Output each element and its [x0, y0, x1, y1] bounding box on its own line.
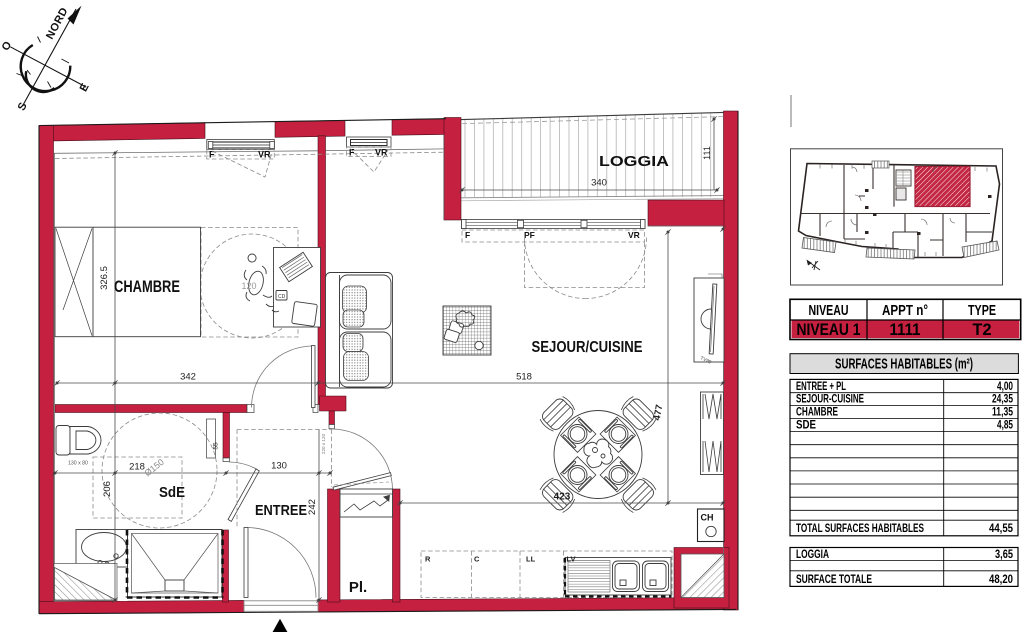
svg-text:F: F: [465, 230, 470, 240]
svg-text:11,35: 11,35: [992, 407, 1013, 419]
svg-text:SDE: SDE: [796, 420, 816, 432]
svg-text:1111: 1111: [890, 321, 921, 339]
svg-text:24,35: 24,35: [992, 394, 1013, 406]
svg-text:TOTAL SURFACES HABITABLES: TOTAL SURFACES HABITABLES: [796, 521, 924, 535]
svg-text:CHAMBRE: CHAMBRE: [796, 407, 838, 419]
svg-text:SdE: SdE: [159, 484, 185, 501]
svg-text:3,65: 3,65: [995, 549, 1013, 561]
svg-text:130: 130: [271, 461, 287, 472]
svg-text:ENTREE + PL: ENTREE + PL: [796, 381, 846, 393]
svg-text:518: 518: [516, 372, 532, 383]
svg-text:APPT n°: APPT n°: [882, 303, 928, 319]
svg-text:LOGGIA: LOGGIA: [599, 154, 670, 170]
svg-text:4,00: 4,00: [997, 381, 1013, 393]
svg-text:SURFACES HABITABLES (m²): SURFACES HABITABLES (m²): [835, 356, 973, 372]
svg-text:R: R: [425, 555, 431, 564]
svg-text:SEJOUR-CUISINE: SEJOUR-CUISINE: [796, 394, 864, 406]
svg-text:340: 340: [591, 178, 607, 189]
svg-text:SEJOUR/CUISINE: SEJOUR/CUISINE: [532, 339, 643, 356]
svg-text:C: C: [474, 555, 480, 564]
svg-text:T2: T2: [973, 321, 992, 339]
svg-text:CH: CH: [701, 513, 714, 523]
svg-text:111: 111: [702, 146, 712, 160]
svg-text:SURFACE TOTALE: SURFACE TOTALE: [796, 572, 872, 586]
svg-text:CD: CD: [278, 294, 286, 300]
svg-text:NIVEAU 1: NIVEAU 1: [797, 321, 861, 339]
svg-text:242: 242: [307, 499, 318, 515]
svg-text:LOGGIA: LOGGIA: [796, 549, 829, 561]
svg-text:44,55: 44,55: [989, 521, 1013, 535]
svg-text:CHAMBRE: CHAMBRE: [114, 277, 180, 296]
svg-text:F: F: [349, 148, 355, 158]
svg-text:TYPE: TYPE: [968, 303, 996, 319]
svg-text:423: 423: [554, 492, 571, 503]
svg-text:LL: LL: [526, 555, 536, 564]
svg-text:NIVEAU: NIVEAU: [809, 303, 849, 319]
svg-text:120: 120: [241, 281, 256, 291]
svg-text:130 x 80: 130 x 80: [68, 461, 88, 467]
svg-text:VR: VR: [375, 148, 388, 158]
svg-text:55: 55: [213, 442, 220, 450]
svg-text:220 x 120: 220 x 120: [321, 433, 326, 454]
svg-text:4,85: 4,85: [997, 420, 1013, 432]
svg-text:Pl.: Pl.: [349, 579, 367, 596]
svg-text:342: 342: [180, 372, 196, 383]
svg-text:ENTREE: ENTREE: [255, 502, 307, 519]
svg-text:48,20: 48,20: [989, 572, 1013, 586]
svg-text:PF: PF: [524, 230, 535, 240]
svg-text:VR: VR: [628, 230, 640, 240]
svg-text:LV: LV: [567, 555, 576, 564]
svg-text:VR: VR: [258, 150, 271, 160]
svg-text:206: 206: [102, 481, 113, 497]
svg-text:326.5: 326.5: [99, 266, 110, 290]
